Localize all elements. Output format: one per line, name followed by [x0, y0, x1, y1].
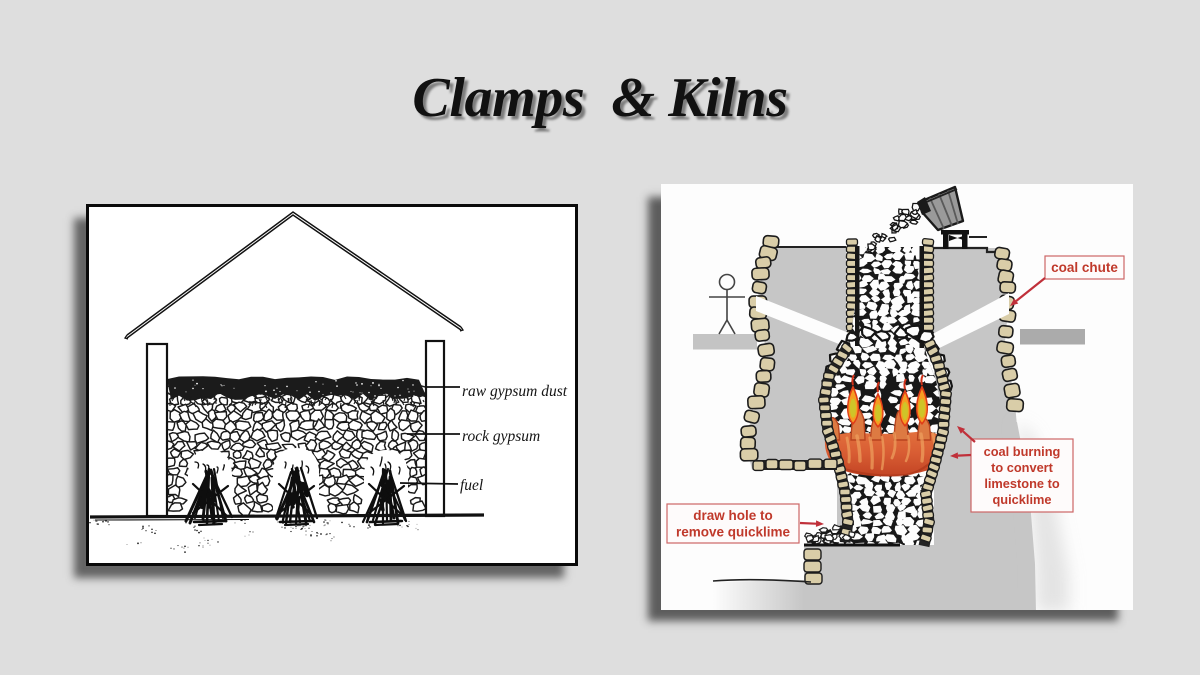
svg-text:limestone to: limestone to [984, 476, 1060, 491]
svg-text:coal chute: coal chute [1051, 260, 1118, 275]
svg-text:rock gypsum: rock gypsum [462, 428, 540, 445]
svg-text:remove quicklime: remove quicklime [676, 525, 791, 540]
svg-text:to convert: to convert [991, 460, 1054, 475]
svg-text:draw hole to: draw hole to [693, 508, 773, 523]
svg-text:raw gypsum dust: raw gypsum dust [462, 383, 568, 400]
svg-text:fuel: fuel [460, 477, 483, 494]
svg-text:coal burning: coal burning [984, 444, 1061, 459]
svg-text:quicklime: quicklime [992, 492, 1051, 507]
